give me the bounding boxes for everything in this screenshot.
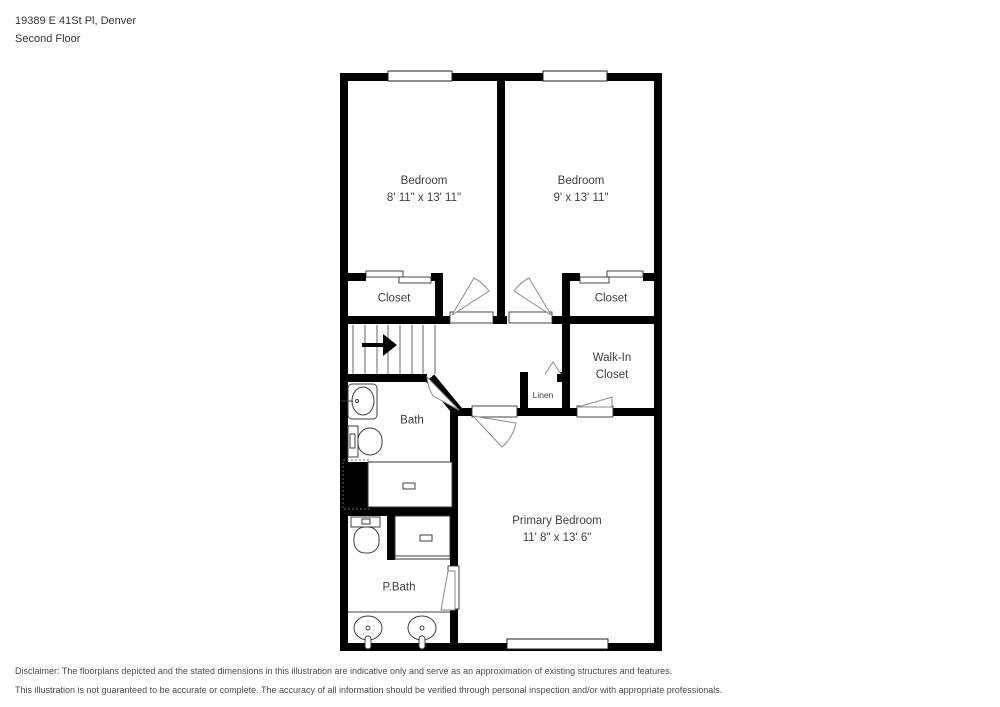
room-label-primary-bedroom: Primary Bedroom 11' 8" x 13' 6" — [512, 513, 601, 547]
door-arc-bedroom1 — [452, 278, 489, 315]
room-dims: 11' 8" x 13' 6" — [512, 530, 601, 547]
window-bedroom1 — [388, 71, 452, 81]
floorplan-drawing — [0, 0, 1000, 707]
window-primary-bedroom — [507, 639, 608, 649]
door-arc-bath — [427, 377, 459, 410]
room-name: Bedroom — [554, 173, 609, 190]
threshold-primary-door — [472, 406, 517, 417]
room-dims: 9' x 13' 11" — [554, 190, 609, 207]
window-bedroom2 — [543, 71, 607, 81]
threshold-walkin-door — [577, 406, 613, 417]
door-thresholds — [448, 312, 613, 609]
door-leaf-pbath — [441, 571, 455, 610]
stairs — [353, 325, 435, 374]
threshold-bedroom2-door — [509, 312, 552, 323]
room-name: Walk-In — [593, 350, 632, 367]
threshold-bedroom1-door — [450, 312, 493, 323]
shower-icon — [395, 516, 450, 559]
room-label-pbath: P.Bath — [382, 580, 415, 597]
room-label-linen: Linen — [533, 390, 554, 400]
stair-direction-arrow-icon — [362, 334, 397, 356]
disclaimer-line1: Disclaimer: The floorplans depicted and … — [15, 662, 722, 681]
door-arc-bedroom2 — [514, 278, 551, 315]
door-leaf-linen — [545, 362, 561, 374]
room-label-walkin-closet: Walk-In Closet — [593, 350, 632, 384]
room-label-bedroom2: Bedroom 9' x 13' 11" — [554, 173, 609, 207]
shower-icon — [368, 462, 452, 507]
disclaimer: Disclaimer: The floorplans depicted and … — [15, 662, 722, 699]
room-name: Closet — [593, 367, 632, 384]
room-name: Primary Bedroom — [512, 513, 601, 530]
room-name: Bedroom — [387, 173, 461, 190]
room-dims: 8' 11" x 13' 11" — [387, 190, 461, 207]
room-label-bedroom1: Bedroom 8' 11" x 13' 11" — [387, 173, 461, 207]
toilet-icon — [351, 517, 380, 553]
room-label-closet2: Closet — [595, 291, 628, 308]
toilet-icon — [348, 426, 382, 457]
door-arc-primary-bedroom — [473, 416, 516, 447]
room-label-closet1: Closet — [378, 291, 411, 308]
door-leaf-walkin — [578, 397, 612, 407]
disclaimer-line2: This illustration is not guaranteed to b… — [15, 681, 722, 700]
room-label-bath: Bath — [400, 413, 424, 430]
floorplan-page: 19389 E 41St Pl, Denver Second Floor — [0, 0, 1000, 707]
